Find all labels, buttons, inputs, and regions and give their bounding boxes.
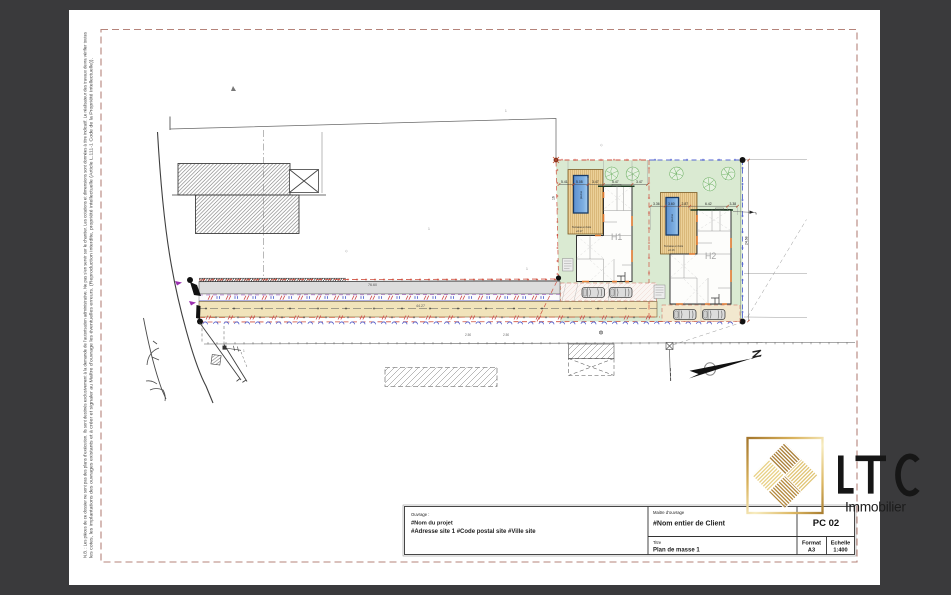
svg-text:Echelle: Echelle — [831, 541, 851, 547]
svg-text:2.50: 2.50 — [465, 333, 471, 337]
svg-text:24.68: 24.68 — [744, 236, 748, 245]
svg-text:piscine: piscine — [670, 213, 674, 222]
svg-text:PC 02: PC 02 — [813, 518, 839, 529]
svg-text:3.47: 3.47 — [592, 180, 599, 184]
svg-text:1:400: 1:400 — [833, 548, 847, 554]
svg-text:Plan de masse 1: Plan de masse 1 — [653, 548, 700, 554]
svg-text:3.47: 3.47 — [636, 180, 643, 184]
svg-text:5.08: 5.08 — [576, 180, 583, 184]
svg-text:Terrasse en bois: Terrasse en bois — [664, 244, 684, 248]
svg-text:6.42: 6.42 — [705, 202, 712, 206]
svg-text:Immobilier: Immobilier — [845, 500, 906, 515]
svg-text:Terrasse en bois: Terrasse en bois — [572, 225, 592, 229]
svg-text:Titre: Titre — [653, 540, 662, 545]
svg-text:+0.16: +0.16 — [668, 248, 675, 252]
svg-text:A3: A3 — [808, 548, 815, 554]
svg-text:Maitre d’ouvrage: Maitre d’ouvrage — [653, 510, 685, 515]
svg-text:16: 16 — [552, 196, 556, 200]
svg-text:◇: ◇ — [345, 249, 348, 253]
svg-text:3.60: 3.60 — [668, 202, 675, 206]
svg-text:1: 1 — [505, 109, 507, 113]
svg-text:1: 1 — [243, 349, 245, 353]
svg-text:+0.17: +0.17 — [576, 229, 583, 233]
svg-text:Ouvrage :: Ouvrage : — [411, 512, 429, 517]
svg-text:3.38: 3.38 — [730, 202, 737, 206]
svg-text:5.47: 5.47 — [612, 180, 619, 184]
svg-text:piscine: piscine — [579, 190, 583, 199]
svg-text:N: N — [755, 212, 757, 216]
svg-text:Format: Format — [802, 541, 821, 547]
svg-text:les cotes, les implantations d: les cotes, les implantations des ouvrage… — [89, 58, 94, 558]
svg-text:1: 1 — [317, 189, 319, 193]
svg-text:44.27: 44.27 — [416, 304, 425, 308]
svg-text:3.36: 3.36 — [653, 202, 660, 206]
svg-text:N.B. : Les pièces de ce dossie: N.B. : Les pièces de ce dossier ne sont … — [83, 31, 88, 558]
svg-text:2.50: 2.50 — [503, 333, 509, 337]
svg-text:#Nom entier de Client: #Nom entier de Client — [653, 521, 726, 528]
svg-text:76.60: 76.60 — [368, 283, 377, 287]
svg-text:1: 1 — [428, 227, 430, 231]
svg-text:H2: H2 — [705, 251, 716, 261]
svg-text:H1: H1 — [611, 232, 622, 242]
svg-text:#Nom du projet: #Nom du projet — [411, 521, 453, 527]
svg-text:5.41: 5.41 — [561, 180, 568, 184]
svg-text:2.87: 2.87 — [682, 202, 689, 206]
svg-text:◇: ◇ — [600, 143, 603, 147]
svg-text:#Adresse site 1 #Code postal s: #Adresse site 1 #Code postal site #Ville… — [411, 529, 536, 535]
svg-text:1: 1 — [526, 267, 528, 271]
